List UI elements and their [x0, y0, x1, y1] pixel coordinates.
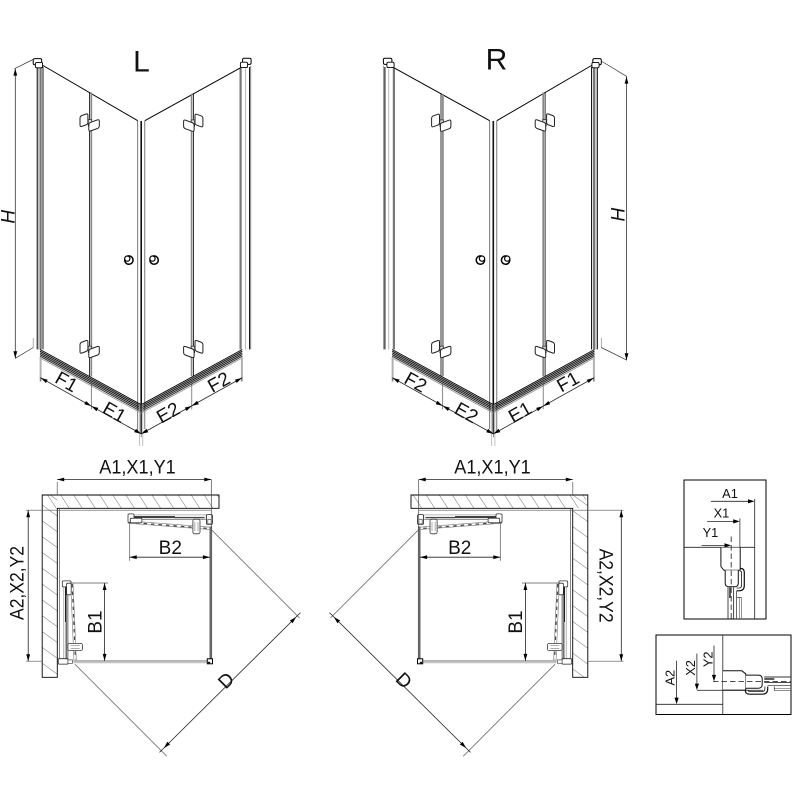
svg-text:X1: X1 — [714, 506, 730, 521]
svg-text:B1: B1 — [506, 610, 527, 633]
svg-text:L: L — [133, 45, 150, 78]
svg-text:A2,X2,Y2: A2,X2,Y2 — [595, 549, 616, 623]
svg-text:R: R — [486, 43, 508, 76]
svg-text:X2: X2 — [683, 660, 698, 676]
svg-text:A1: A1 — [722, 486, 738, 501]
svg-text:B2: B2 — [159, 538, 182, 559]
svg-text:B2: B2 — [448, 538, 471, 559]
svg-text:H: H — [0, 210, 19, 224]
svg-text:Y2: Y2 — [700, 651, 715, 667]
svg-text:A2: A2 — [663, 670, 678, 686]
svg-text:A1,X1,Y1: A1,X1,Y1 — [454, 457, 531, 478]
svg-text:A1,X1,Y1: A1,X1,Y1 — [99, 457, 176, 478]
svg-text:B1: B1 — [85, 610, 106, 633]
svg-text:A2,X2,Y2: A2,X2,Y2 — [7, 546, 28, 620]
svg-text:Y1: Y1 — [703, 525, 719, 540]
svg-text:H: H — [606, 207, 627, 221]
